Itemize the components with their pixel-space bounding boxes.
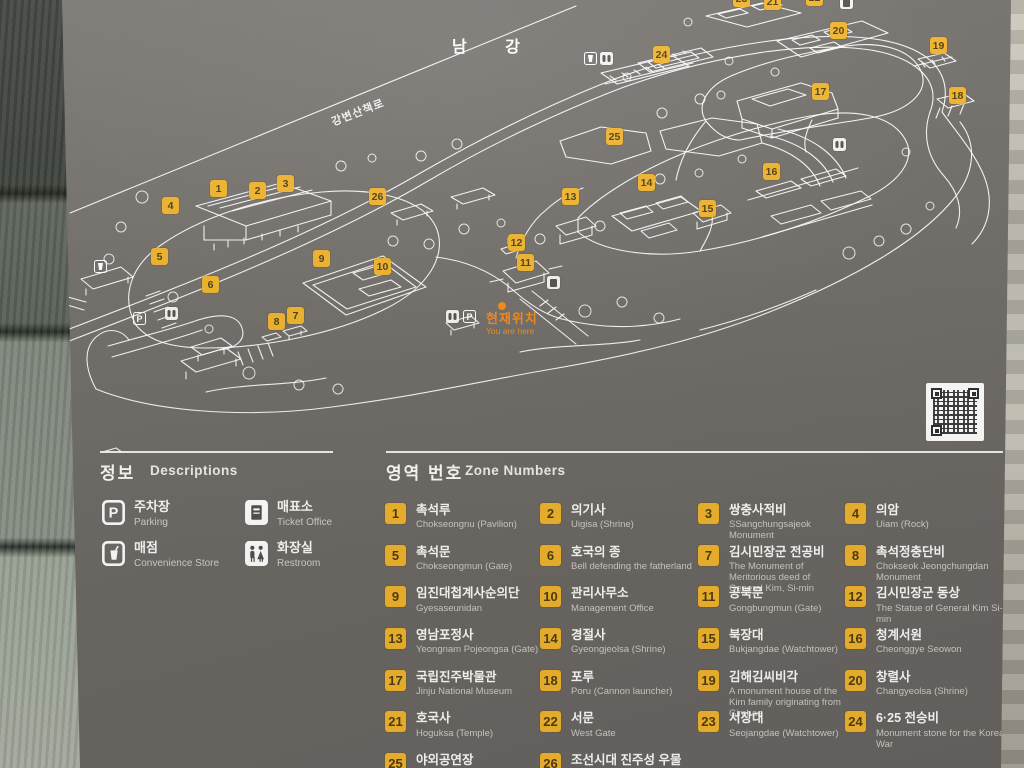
zone-item: 25 야외공연장 Outdoor Stage <box>385 753 540 768</box>
restroom-icon <box>245 541 268 566</box>
zone-item: 16 청계서원 Cheonggye Seowon <box>845 628 1024 670</box>
descriptions-divider <box>100 451 333 453</box>
zones-divider <box>386 451 1003 453</box>
zone-name-en: SSangchungsajeok Monument <box>729 519 845 541</box>
zone-item: 8 촉석정충단비 Chokseok Jeongchungdan Monument <box>845 545 1024 587</box>
zone-number-badge: 18 <box>540 670 561 691</box>
map-zone-marker: 18 <box>949 87 966 104</box>
legend-label-en: Ticket Office <box>277 517 332 528</box>
zone-item: 21 호국사 Hoguksa (Temple) <box>385 711 540 753</box>
map-zone-marker: 20 <box>830 22 847 39</box>
zone-name-kr: 촉석문 <box>416 545 512 559</box>
legend-item-ticket-office: 매표소 Ticket Office <box>245 500 332 528</box>
parking-icon: P <box>463 310 476 323</box>
zone-number-badge: 11 <box>698 586 719 607</box>
zone-number-badge: 16 <box>845 628 866 649</box>
zone-number-badge: 13 <box>385 628 406 649</box>
zone-name-en: Gyeongjeolsa (Shrine) <box>571 644 666 655</box>
zone-name-kr: 서문 <box>571 711 616 725</box>
map-zone-marker: 24 <box>653 46 670 63</box>
legend-item-parking: P 주차장 Parking <box>102 500 170 528</box>
qr-code <box>926 383 984 441</box>
zone-number-badge: 19 <box>698 670 719 691</box>
zone-item: 7 김시민장군 전공비 The Monument of Meritorious … <box>698 545 845 587</box>
zone-number-badge: 21 <box>385 711 406 732</box>
zone-name-kr: 촉석루 <box>416 503 517 517</box>
zone-name-kr: 조선시대 진주성 우물 <box>571 753 698 767</box>
convenience-store-icon <box>584 52 597 65</box>
zone-number-badge: 5 <box>385 545 406 566</box>
descriptions-title-en: Descriptions <box>150 463 238 478</box>
zone-name-en: Chokseongnu (Pavilion) <box>416 519 517 530</box>
zone-name-kr: 쌍충사적비 <box>729 503 845 517</box>
zone-name-kr: 포루 <box>571 670 672 684</box>
zone-item: 6 호국의 종 Bell defending the fatherland <box>540 545 698 587</box>
zone-number-badge: 26 <box>540 753 561 768</box>
zone-item: 2 의기사 Uigisa (Shrine) <box>540 503 698 545</box>
zone-item: 14 경절사 Gyeongjeolsa (Shrine) <box>540 628 698 670</box>
zone-name-kr: 청계서원 <box>876 628 962 642</box>
zone-name-en: Gongbungmun (Gate) <box>729 603 821 614</box>
map-zone-marker: 13 <box>562 188 579 205</box>
zone-name-kr: 김시민장군 동상 <box>876 586 1012 600</box>
zone-name-kr: 호국사 <box>416 711 493 725</box>
zone-number-badge: 14 <box>540 628 561 649</box>
legend-item-restroom: 화장실 Restroom <box>245 541 320 569</box>
map-zone-marker: 19 <box>930 37 947 54</box>
zone-name-kr: 영남포정사 <box>416 628 538 642</box>
descriptions-title-kr: 정보 <box>100 459 135 484</box>
restroom-icon <box>600 52 613 65</box>
zone-item: 15 북장대 Bukjangdae (Watchtower) <box>698 628 845 670</box>
map-zone-marker: 17 <box>812 83 829 100</box>
zone-number-badge: 15 <box>698 628 719 649</box>
zone-number-badge: 25 <box>385 753 406 768</box>
zone-name-kr: 의암 <box>876 503 929 517</box>
zone-number-badge: 17 <box>385 670 406 691</box>
map-zone-marker: 14 <box>638 174 655 191</box>
river-label: 남 강 <box>452 33 537 57</box>
zone-name-kr: 6·25 전승비 <box>876 711 1012 725</box>
you-are-here-label: 현재위치 You are here <box>486 312 538 337</box>
zone-item: 23 서장대 Seojangdae (Watchtower) <box>698 711 845 753</box>
zone-name-kr: 경절사 <box>571 628 666 642</box>
zone-name-kr: 임진대첩계사순의단 <box>416 586 520 600</box>
zone-number-badge: 12 <box>845 586 866 607</box>
zone-name-kr: 서장대 <box>729 711 838 725</box>
zone-item: 17 국립진주박물관 Jinju National Museum <box>385 670 540 712</box>
zone-number-badge: 8 <box>845 545 866 566</box>
zone-name-kr: 촉석정충단비 <box>876 545 1012 559</box>
map-line-art <box>0 0 1024 452</box>
zone-item: 20 창렬사 Changyeolsa (Shrine) <box>845 670 1024 712</box>
map-zone-marker: 25 <box>606 128 623 145</box>
map-zone-marker: 10 <box>374 258 391 275</box>
map-zone-marker: 5 <box>151 248 168 265</box>
photo-of-park-map-sign: 남 강 강변산책로 현재위치 You are here 123456789101… <box>0 0 1024 768</box>
zone-name-kr: 국립진주박물관 <box>416 670 512 684</box>
zone-name-en: Management Office <box>571 603 654 614</box>
zone-name-en: Yeongnam Pojeongsa (Gate) <box>416 644 538 655</box>
zone-item: 26 조선시대 진주성 우물 Jinjuseong Well of Joseon… <box>540 753 698 768</box>
legend-label-en: Parking <box>134 517 170 528</box>
zone-number-badge: 1 <box>385 503 406 524</box>
map-zone-marker: 8 <box>268 313 285 330</box>
legend-label-kr: 매표소 <box>277 500 332 514</box>
ticket-office-icon <box>547 276 560 289</box>
zone-number-badge: 20 <box>845 670 866 691</box>
zone-name-en: The Statue of General Kim Si-min <box>876 603 1012 625</box>
zone-name-en: Gyesaseunidan <box>416 603 520 614</box>
zone-name-kr: 호국의 종 <box>571 545 692 559</box>
zone-name-en: Monument stone for the Korean War <box>876 728 1012 750</box>
zone-number-badge: 10 <box>540 586 561 607</box>
map-zone-marker: 22 <box>806 0 823 6</box>
zone-number-badge: 9 <box>385 586 406 607</box>
zone-number-list: 1 촉석루 Chokseongnu (Pavilion) 2 의기사 Uigis… <box>385 503 1024 768</box>
convenience-store-icon <box>102 541 125 566</box>
legend-label-kr: 주차장 <box>134 500 170 514</box>
zone-item: 13 영남포정사 Yeongnam Pojeongsa (Gate) <box>385 628 540 670</box>
ticket-office-icon <box>245 500 268 525</box>
zone-number-badge: 2 <box>540 503 561 524</box>
zone-name-kr: 관리사무소 <box>571 586 654 600</box>
legend-label-kr: 매점 <box>134 541 219 555</box>
map-zone-marker: 26 <box>369 188 386 205</box>
legend-label-kr: 화장실 <box>277 541 320 555</box>
you-are-here-kr: 현재위치 <box>486 312 538 326</box>
map-zone-marker: 23 <box>733 0 750 7</box>
zone-name-en: West Gate <box>571 728 616 739</box>
restroom-icon <box>446 310 459 323</box>
zone-item: 24 6·25 전승비 Monument stone for the Korea… <box>845 711 1024 753</box>
zone-number-badge: 3 <box>698 503 719 524</box>
map-zone-marker: 15 <box>699 200 716 217</box>
map-zone-marker: 2 <box>249 182 266 199</box>
map-zone-marker: 3 <box>277 175 294 192</box>
zone-number-badge: 22 <box>540 711 561 732</box>
zone-item: 12 김시민장군 동상 The Statue of General Kim Si… <box>845 586 1024 628</box>
zone-name-kr: 김시민장군 전공비 <box>729 545 845 559</box>
parking-icon: P <box>133 312 146 325</box>
parking-icon: P <box>102 500 125 525</box>
zone-item: 5 촉석문 Chokseongmun (Gate) <box>385 545 540 587</box>
zone-name-en: Chokseok Jeongchungdan Monument <box>876 561 1012 583</box>
zone-item: 3 쌍충사적비 SSangchungsajeok Monument <box>698 503 845 545</box>
convenience-store-icon <box>94 260 107 273</box>
zone-name-en: Poru (Cannon launcher) <box>571 686 672 697</box>
map-zone-marker: 6 <box>202 276 219 293</box>
zone-name-en: Seojangdae (Watchtower) <box>729 728 838 739</box>
zone-name-en: Chokseongmun (Gate) <box>416 561 512 572</box>
zone-item: 18 포루 Poru (Cannon launcher) <box>540 670 698 712</box>
map-zone-marker: 16 <box>763 163 780 180</box>
jinjuseong-fortress-map-sign: 남 강 강변산책로 현재위치 You are here 123456789101… <box>0 0 1024 768</box>
zone-name-en: Bukjangdae (Watchtower) <box>729 644 838 655</box>
ticket-office-icon <box>840 0 853 9</box>
zones-title-kr: 영역 번호 <box>386 459 463 484</box>
zone-name-en: Changyeolsa (Shrine) <box>876 686 968 697</box>
map-zone-marker: 12 <box>508 234 525 251</box>
restroom-icon <box>833 138 846 151</box>
zone-name-kr: 김해김씨비각 <box>729 670 845 684</box>
zone-number-badge: 6 <box>540 545 561 566</box>
map-zone-marker: 9 <box>313 250 330 267</box>
zones-title-en: Zone Numbers <box>465 463 566 478</box>
zone-name-en: Cheonggye Seowon <box>876 644 962 655</box>
map-zone-marker: 1 <box>210 180 227 197</box>
legend-label-en: Restroom <box>277 558 320 569</box>
restroom-icon <box>165 307 178 320</box>
zone-item: 10 관리사무소 Management Office <box>540 586 698 628</box>
you-are-here-dot <box>498 302 506 310</box>
zone-item: 19 김해김씨비각 A monument house of the Kim fa… <box>698 670 845 712</box>
map-zone-marker: 21 <box>764 0 781 10</box>
zone-name-en: Uiam (Rock) <box>876 519 929 530</box>
zone-name-kr: 창렬사 <box>876 670 968 684</box>
zone-name-kr: 야외공연장 <box>416 753 478 767</box>
zone-name-en: Bell defending the fatherland <box>571 561 692 572</box>
zone-item: 1 촉석루 Chokseongnu (Pavilion) <box>385 503 540 545</box>
zone-number-badge: 4 <box>845 503 866 524</box>
zone-item: 4 의암 Uiam (Rock) <box>845 503 1024 545</box>
zone-item: 11 공북문 Gongbungmun (Gate) <box>698 586 845 628</box>
zone-name-en: Jinju National Museum <box>416 686 512 697</box>
zone-name-en: Uigisa (Shrine) <box>571 519 634 530</box>
zone-number-badge: 7 <box>698 545 719 566</box>
zone-number-badge: 24 <box>845 711 866 732</box>
map-zone-marker: 4 <box>162 197 179 214</box>
legend-item-convenience-store: 매점 Convenience Store <box>102 541 219 569</box>
zone-name-kr: 북장대 <box>729 628 838 642</box>
legend-label-en: Convenience Store <box>134 558 219 569</box>
you-are-here-en: You are here <box>486 327 538 336</box>
map-zone-marker: 7 <box>287 307 304 324</box>
zone-name-en: Hoguksa (Temple) <box>416 728 493 739</box>
zone-name-kr: 의기사 <box>571 503 634 517</box>
map-zone-marker: 11 <box>517 254 534 271</box>
zone-item: 9 임진대첩계사순의단 Gyesaseunidan <box>385 586 540 628</box>
zone-name-kr: 공북문 <box>729 586 821 600</box>
zone-number-badge: 23 <box>698 711 719 732</box>
zone-item: 22 서문 West Gate <box>540 711 698 753</box>
svg-text:P: P <box>109 506 119 522</box>
